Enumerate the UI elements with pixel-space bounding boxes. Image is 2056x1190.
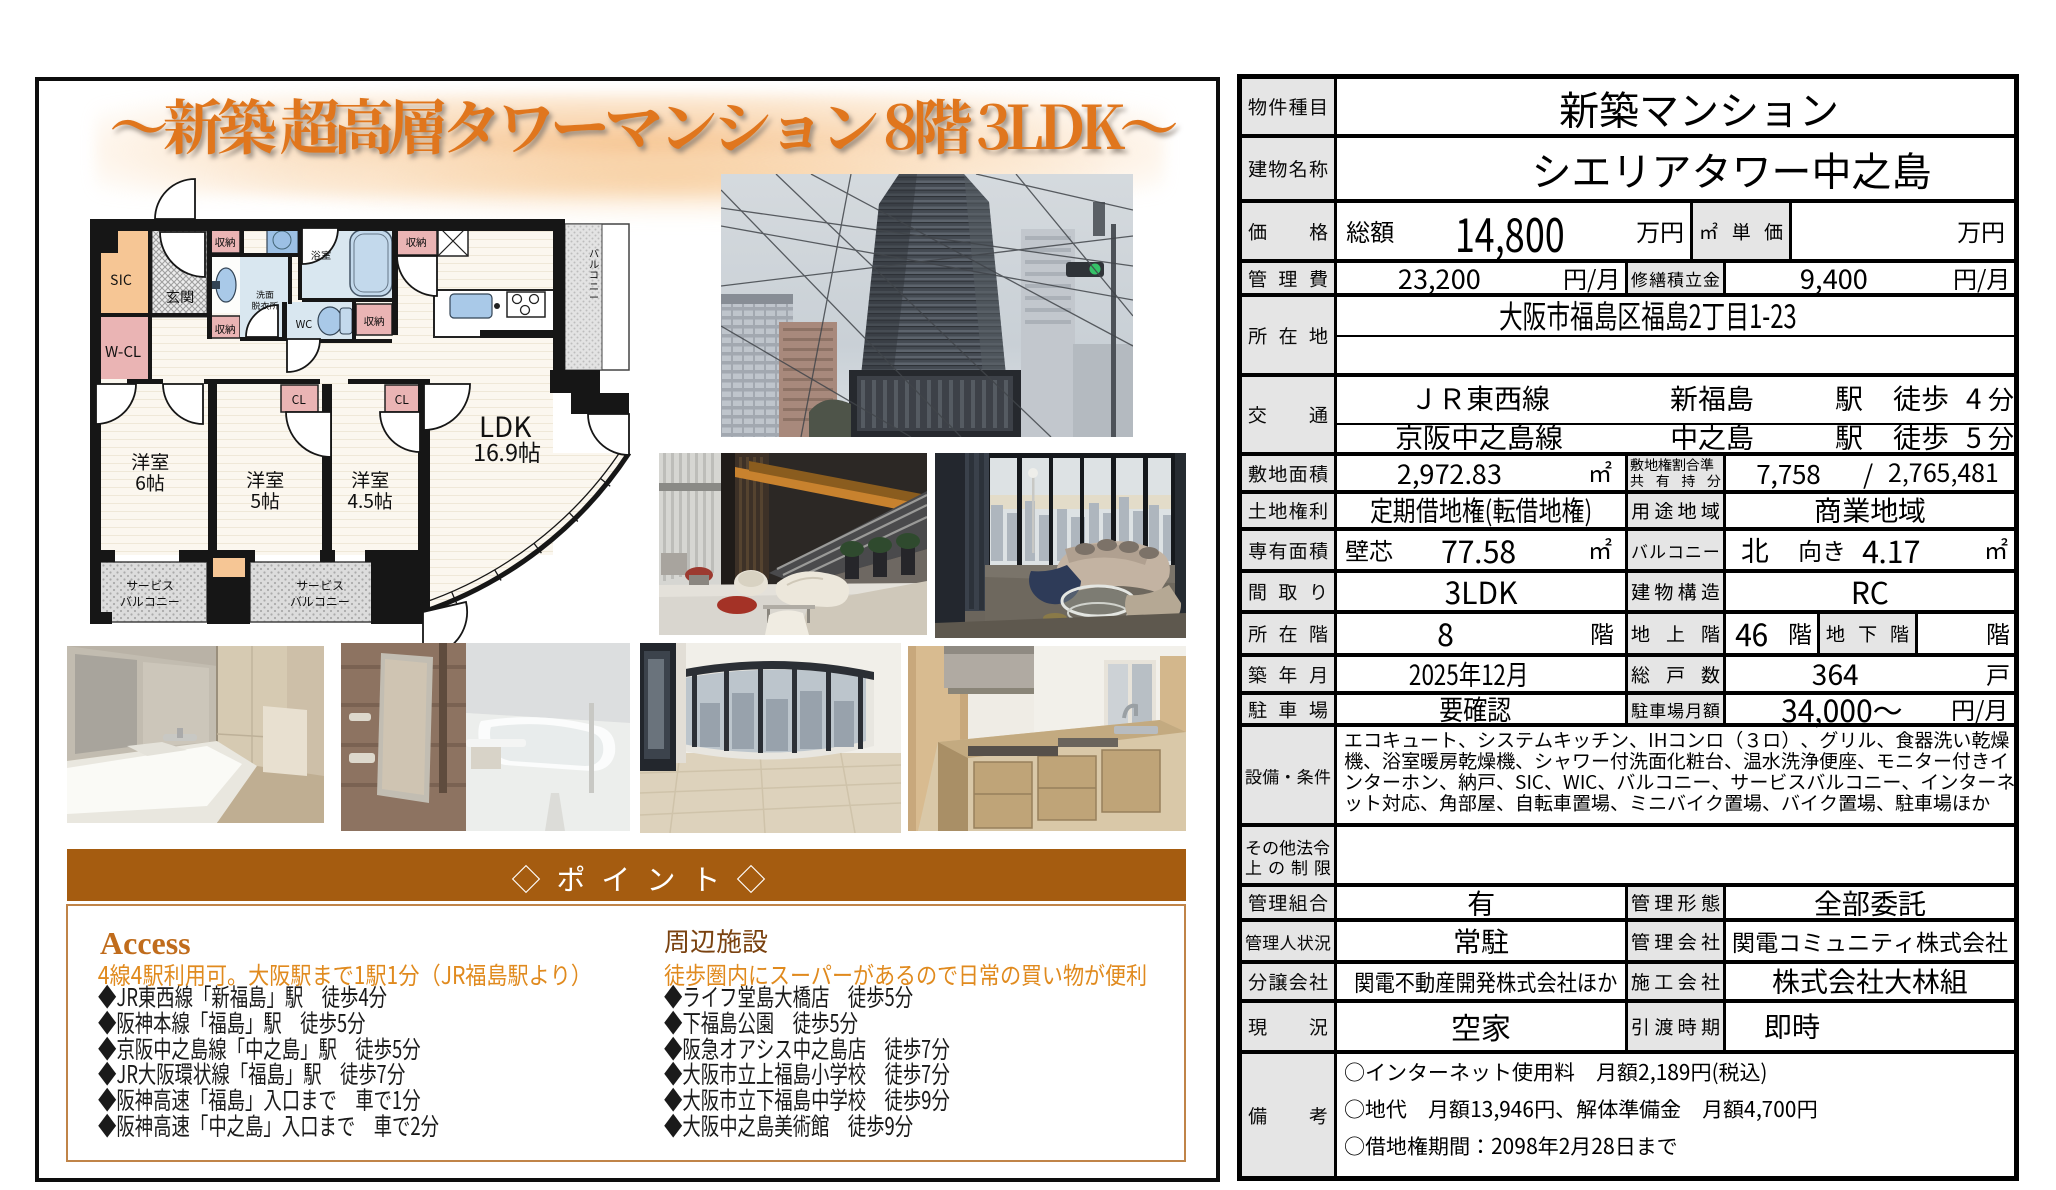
svg-text:収納: 収納 (215, 322, 236, 337)
svg-text:収納: 収納 (364, 314, 385, 329)
svg-text:4.5帖: 4.5帖 (347, 487, 392, 514)
svg-text:バルコニー: バルコニー (290, 593, 350, 610)
svg-text:WC: WC (296, 316, 313, 332)
svg-text:収納: 収納 (215, 235, 236, 250)
svg-text:6帖: 6帖 (135, 469, 165, 496)
svg-text:浴室: 浴室 (311, 247, 331, 262)
svg-text:収納: 収納 (406, 235, 427, 250)
svg-text:CL: CL (395, 391, 409, 408)
svg-text:サービス: サービス (296, 577, 344, 594)
svg-text:CL: CL (292, 391, 306, 408)
svg-text:バルコニー: バルコニー (120, 593, 180, 610)
svg-text:5帖: 5帖 (250, 487, 280, 514)
svg-text:W-CL: W-CL (105, 341, 141, 362)
svg-text:脱衣所: 脱衣所 (251, 299, 278, 312)
svg-text:SIC: SIC (110, 270, 131, 290)
svg-text:サービス: サービス (126, 577, 174, 594)
svg-text:玄関: 玄関 (166, 287, 194, 307)
svg-text:16.9帖: 16.9帖 (473, 434, 541, 468)
svg-text:バルコニー: バルコニー (587, 248, 602, 303)
